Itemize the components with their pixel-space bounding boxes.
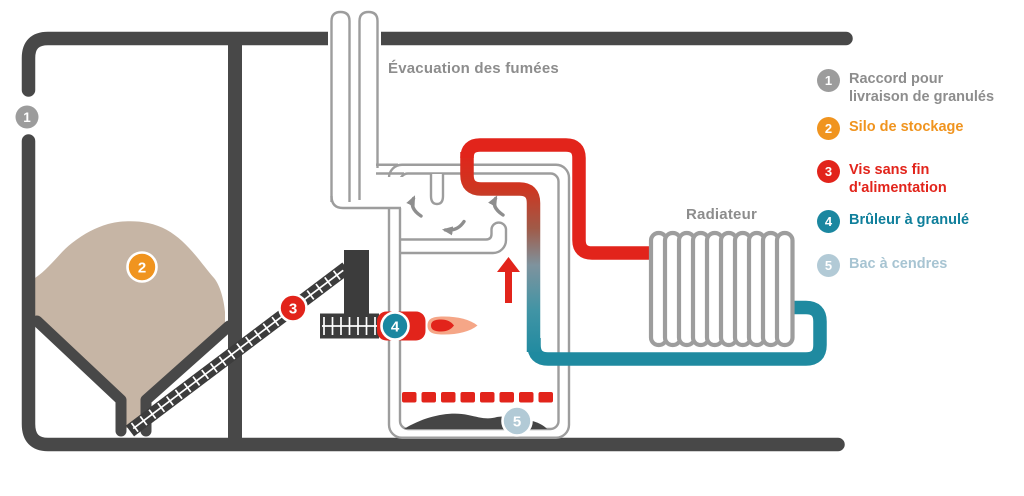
legend-label-2: Silo de stockage — [849, 119, 963, 137]
auger-screw-horizontal — [320, 314, 379, 339]
marker-4-bruleur: 4 — [382, 313, 409, 340]
legend-badge-4: 4 — [817, 210, 840, 233]
legend-item-vis: 3 Vis sans fin d'alimentation — [817, 160, 947, 197]
marker-3-vis: 3 — [280, 295, 307, 322]
legend-label-1: Raccord pour livraison de granulés — [849, 71, 994, 106]
baffle — [431, 174, 443, 204]
legend-badge-2: 2 — [817, 117, 840, 140]
marker-5-cendres: 5 — [503, 407, 532, 436]
legend-item-raccord: 1 Raccord pour livraison de granulés — [817, 69, 994, 106]
svg-text:4: 4 — [391, 319, 400, 336]
legend-item-silo: 2 Silo de stockage — [817, 117, 963, 140]
radiator — [651, 233, 793, 345]
pellet-drop-duct — [344, 250, 369, 316]
chimney-flue — [328, 12, 381, 206]
flue-wall-right — [360, 12, 378, 200]
legend-badge-3: 3 — [817, 160, 840, 183]
marker-1-raccord: 1 — [16, 106, 39, 129]
radiator-label: Radiateur — [650, 206, 793, 223]
legend-badge-1: 1 — [817, 69, 840, 92]
svg-text:2: 2 — [138, 260, 146, 277]
legend-label-3: Vis sans fin d'alimentation — [849, 162, 947, 197]
legend-badge-5: 5 — [817, 254, 840, 277]
svg-text:3: 3 — [289, 301, 297, 318]
legend-item-cendres: 5 Bac à cendres — [817, 254, 947, 277]
legend-label-4: Brûleur à granulé — [849, 212, 969, 230]
pellet-pile — [35, 221, 225, 428]
svg-text:5: 5 — [513, 414, 521, 431]
legend-label-5: Bac à cendres — [849, 256, 947, 274]
pellet-heating-diagram: 1 2 3 4 5 Évacuation des fumées Radiateu… — [0, 0, 1024, 496]
flue-wall-left — [332, 12, 350, 202]
svg-text:1: 1 — [23, 110, 31, 125]
flue-label: Évacuation des fumées — [388, 60, 559, 77]
legend-item-bruleur: 4 Brûleur à granulé — [817, 210, 969, 233]
marker-2-silo: 2 — [128, 253, 157, 282]
